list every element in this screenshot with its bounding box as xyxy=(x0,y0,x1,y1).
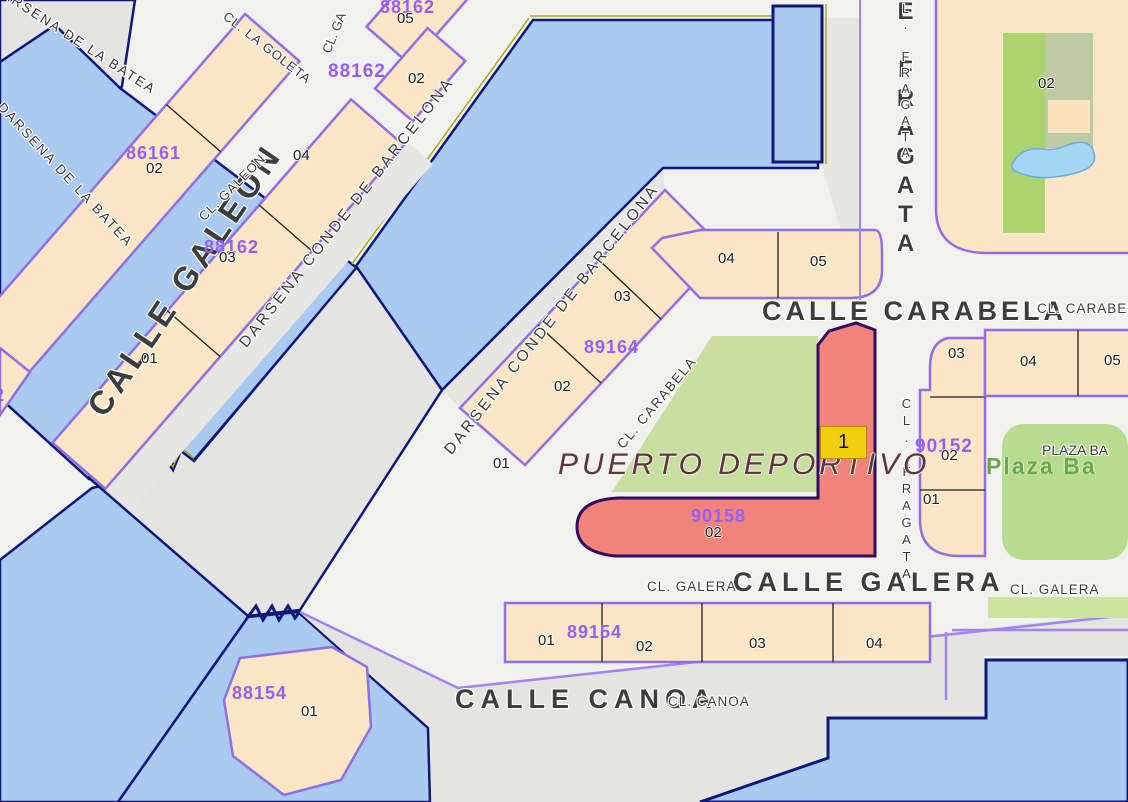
parcel-number: 05 xyxy=(810,254,827,269)
street-label-calle-carabela: CALLE CARABELA xyxy=(762,298,1067,325)
highlight-badge[interactable]: 1 xyxy=(820,426,867,459)
parcel-number: 02 xyxy=(1038,76,1055,91)
parcel-number: 02 xyxy=(636,639,653,654)
street-label-cl-carabela-right: CL. CARABELA xyxy=(1037,302,1128,316)
cadastral-code-88154: 88154 xyxy=(232,684,287,702)
parcel-number: 04 xyxy=(718,251,735,266)
parcel-number: 03 xyxy=(948,346,965,361)
parcel-number: 02 xyxy=(408,71,425,86)
parcel-number: 01 xyxy=(538,633,555,648)
parcel-number: 01 xyxy=(301,704,318,719)
parcel-number: 01 xyxy=(141,351,158,366)
parcel-number: 04 xyxy=(866,636,883,651)
cadastral-map-viewport: { "streets": { "darsena_batea_1": "DARSE… xyxy=(0,0,1128,802)
street-label-cl-fragata-top: CL. FRAGATA xyxy=(899,0,912,162)
parcel-number: 03 xyxy=(749,636,766,651)
street-label-cl-galera-left: CL. GALERA xyxy=(647,580,737,594)
water-marina-notch xyxy=(773,6,822,162)
parcel-number: 05 xyxy=(397,11,414,26)
parcel-number: 04 xyxy=(293,148,310,163)
area-label-plaza-green: Plaza Ba xyxy=(986,455,1097,478)
street-label-cl-canoa: CL. CANOA xyxy=(668,695,750,709)
parcel-number: 03 xyxy=(219,250,236,265)
parcel-number: 02 xyxy=(146,161,163,176)
parcel-number: 03 xyxy=(614,289,631,304)
area-label-puerto-deportivo: PUERTO DEPORTIVO xyxy=(558,450,930,480)
green-strip xyxy=(988,597,1128,618)
parcel-number: 04 xyxy=(1020,354,1037,369)
cadastral-code-89164: 89164 xyxy=(584,338,639,356)
parcel-number: 02 xyxy=(705,525,722,540)
parcel-number: 01 xyxy=(493,456,510,471)
street-label-calle-galera: CALLE GALERA xyxy=(733,569,1005,596)
garden-strip-bright xyxy=(1003,33,1045,233)
parcel-number: 02 xyxy=(941,448,958,463)
parcel-number: 05 xyxy=(1104,353,1121,368)
map-canvas xyxy=(0,0,1128,802)
cadastral-code-89154: 89154 xyxy=(567,623,622,641)
cadastral-code-edge-fragment: 2 xyxy=(0,386,5,404)
street-label-cl-galera-right: CL. GALERA xyxy=(1010,583,1100,597)
cadastral-code-88162-goleta: 88162 xyxy=(328,62,386,81)
parcel-number: 01 xyxy=(923,492,940,507)
parcel-number: 02 xyxy=(554,379,571,394)
garden-inset xyxy=(1048,100,1090,133)
cadastral-code-90158: 90158 xyxy=(691,507,746,525)
street-label-cl-fragata-mid: CL. FRAGATA xyxy=(900,396,913,583)
